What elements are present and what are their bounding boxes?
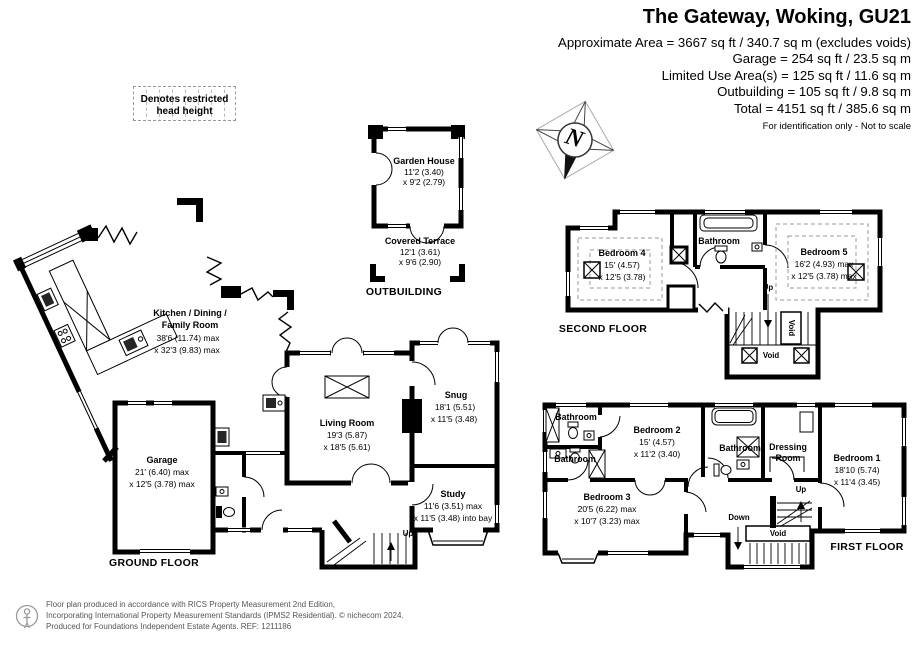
garden-house-dim2: x 9'2 (2.79)	[403, 177, 445, 187]
kitchen-dim1: 38'6 (11.74) max	[157, 333, 220, 343]
second-floor-plan	[566, 210, 883, 378]
staircase-walls	[322, 530, 415, 567]
first-floor-bathroom2-label: Bathroom	[554, 454, 596, 464]
bedroom1-label: Bedroom 1	[833, 453, 880, 463]
staircase	[327, 533, 406, 565]
page-title: The Gateway, Woking, GU21	[558, 6, 911, 29]
bedroom2-dim1: 15' (4.57)	[639, 437, 675, 447]
garage-dim2: x 12'5 (3.78) max	[129, 479, 194, 489]
snug-dim1: 18'1 (5.51)	[435, 402, 475, 412]
dressing-room-label-line1: Dressing	[769, 442, 807, 452]
garage-walls	[115, 403, 213, 552]
study-dim2: x 11'5 (3.48) into bay	[414, 513, 492, 523]
restricted-head-height-legend: Denotes restricted head height	[133, 86, 236, 121]
first-floor-void-label: Void	[770, 529, 786, 539]
bedroom2-label: Bedroom 2	[633, 425, 680, 435]
outbuilding-area-line: Outbuilding = 105 sq ft / 9.8 sq m	[558, 84, 911, 100]
kitchen-label-line2: Family Room	[162, 320, 219, 330]
wc-fixtures	[215, 395, 285, 518]
legend-line2: head height	[134, 106, 235, 118]
first-floor-title: FIRST FLOOR	[830, 542, 903, 552]
approx-area-line: Approximate Area = 3667 sq ft / 340.7 sq…	[558, 35, 911, 51]
bedroom1-dim2: x 11'4 (3.45)	[834, 477, 880, 487]
garden-house-label: Garden House	[393, 156, 455, 166]
footer-line2: Incorporating International Property Mea…	[46, 611, 404, 622]
living-room-dim2: x 18'5 (5.61)	[324, 442, 371, 452]
bedroom5-dim2: x 12'5 (3.78) max	[791, 271, 856, 281]
kitchen-dim2: x 32'3 (9.83) max	[154, 345, 219, 355]
garage-area-line: Garage = 254 sq ft / 23.5 sq m	[558, 51, 911, 67]
study-dim1: 11'6 (3.51) max	[424, 501, 482, 511]
covered-terrace-dim2: x 9'6 (2.90)	[399, 257, 441, 267]
ground-floor-title: GROUND FLOOR	[109, 558, 199, 568]
footer-line1: Floor plan produced in accordance with R…	[46, 600, 404, 611]
living-room-dim1: 19'3 (5.87)	[327, 430, 367, 440]
garage-dim1: 21' (6.40) max	[135, 467, 189, 477]
footer-line3: Produced for Foundations Independent Est…	[46, 622, 404, 633]
second-floor-bathroom-label: Bathroom	[698, 236, 740, 246]
bedroom4-dim2: x 12'5 (3.78)	[599, 272, 646, 282]
disclaimer: For identification only - Not to scale	[558, 121, 911, 132]
dressing-room-label-line2: Room	[776, 453, 801, 463]
garden-house-dim1: 11'2 (3.40)	[404, 167, 444, 177]
study-label: Study	[440, 489, 465, 499]
footer-person-icon	[17, 606, 38, 629]
bedroom5-dim1: 16'2 (4.93) max	[795, 259, 854, 269]
floorplan-page: The Gateway, Woking, GU21 Approximate Ar…	[0, 0, 919, 650]
limited-use-area-line: Limited Use Area(s) = 125 sq ft / 11.6 s…	[558, 68, 911, 84]
second-floor-title: SECOND FLOOR	[559, 324, 647, 334]
bedroom5-label: Bedroom 5	[800, 247, 847, 257]
bedroom1-dim1: 18'10 (5.74)	[834, 465, 879, 475]
bedroom4-label: Bedroom 4	[598, 248, 645, 258]
stair-void-label: Void	[786, 320, 796, 336]
second-floor-void-label: Void	[763, 351, 779, 361]
first-floor-down-label: Down	[728, 513, 749, 523]
kitchen-label-line1: Kitchen / Dining /	[153, 308, 227, 318]
second-floor-up-label: Up	[763, 283, 773, 293]
snug-label: Snug	[445, 390, 468, 400]
covered-terrace-dim1: 12'1 (3.61)	[400, 247, 440, 257]
ground-floor-up-label: Up	[403, 529, 413, 539]
bedroom2-dim2: x 11'2 (3.40)	[634, 449, 680, 459]
outbuilding-title: OUTBUILDING	[366, 287, 442, 297]
footer: Floor plan produced in accordance with R…	[46, 600, 404, 632]
total-area-line: Total = 4151 sq ft / 385.6 sq m	[558, 101, 911, 117]
chimney	[402, 399, 422, 433]
snug-dim2: x 11'5 (3.48)	[431, 414, 477, 424]
bedroom3-label: Bedroom 3	[583, 492, 630, 502]
bedroom3-dim2: x 10'7 (3.23) max	[574, 516, 639, 526]
bedroom4-dim1: 15' (4.57)	[604, 260, 640, 270]
covered-terrace-label: Covered Terrace	[385, 236, 455, 246]
bedroom3-dim1: 20'5 (6.22) max	[578, 504, 637, 514]
garage-label: Garage	[146, 455, 177, 465]
legend-line1: Denotes restricted	[134, 94, 235, 106]
first-floor-up-label: Up	[796, 485, 806, 495]
first-floor-bathroom3-label: Bathroom	[719, 443, 761, 453]
living-room-label: Living Room	[320, 418, 375, 428]
first-floor-bathroom1-label: Bathroom	[555, 412, 597, 422]
header: The Gateway, Woking, GU21 Approximate Ar…	[558, 6, 911, 132]
landing-closet	[668, 286, 694, 310]
